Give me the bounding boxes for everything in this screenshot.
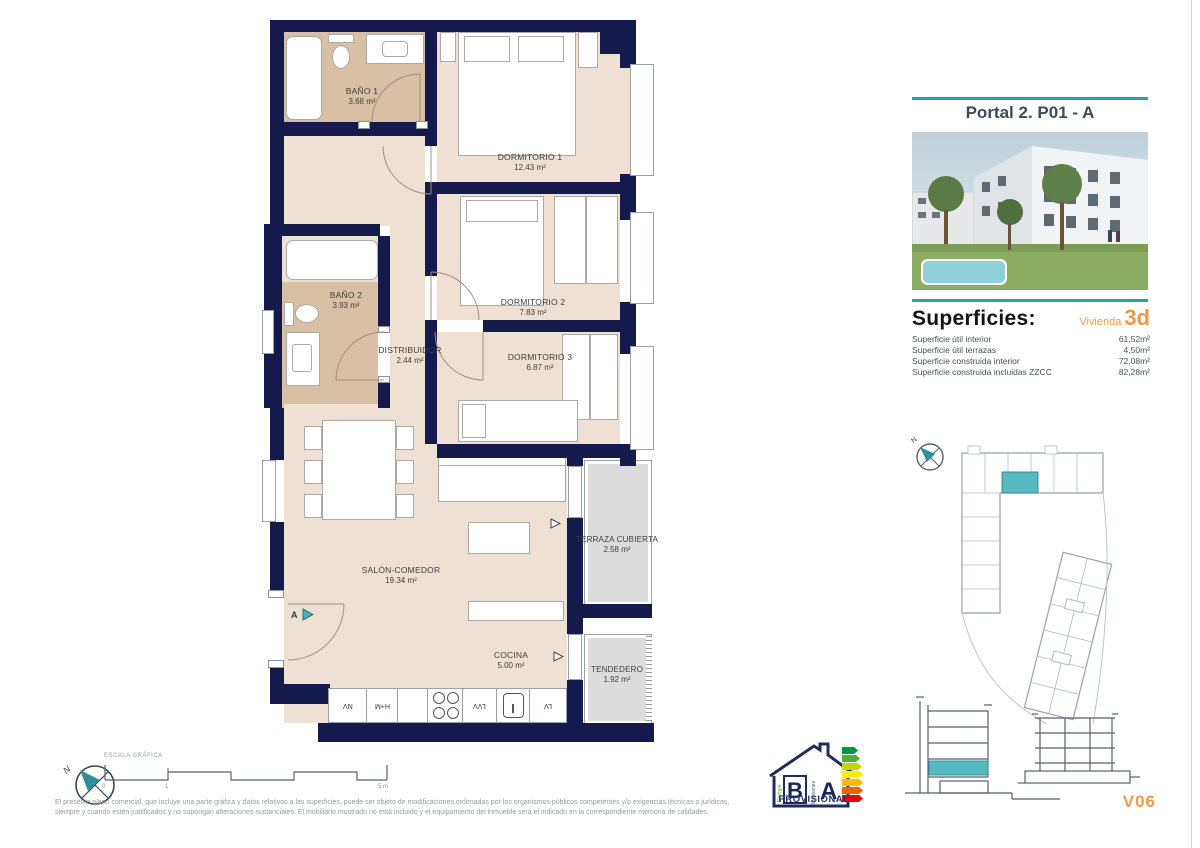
section-right	[1018, 714, 1140, 783]
portal-title: Portal 2. P01 - A	[912, 103, 1148, 123]
surface-row: Superficie construida interior72,08m²	[912, 356, 1150, 366]
room-label-banio2: BAÑO 23.93 m²	[286, 290, 406, 311]
teal-rule-superficies	[912, 299, 1148, 302]
kitchen-cell-dishwasher: LVV	[463, 688, 497, 723]
energy-provisional-label: PROVISIONAL	[764, 794, 864, 805]
kitchen-cell-washer: LV	[530, 688, 567, 723]
superficies-header: Superficies: Vivienda3d	[912, 305, 1150, 331]
kitchen-counter: NV H+M LVV LV	[328, 688, 567, 723]
kitchen-cell-sink	[497, 688, 530, 723]
surface-row: Superficie útil terrazas4,50m²	[912, 345, 1150, 355]
room-label-distribuidor: DISTRIBUIDOR2.44 m²	[350, 345, 470, 366]
teal-rule-top	[912, 97, 1148, 100]
page-edge-line	[1191, 0, 1192, 848]
kitchen-cell-counter	[398, 688, 428, 723]
kitchen-cell-cooktop	[428, 688, 463, 723]
room-label-banio1: BAÑO 13.68 m²	[302, 86, 422, 107]
door-arcs	[262, 14, 664, 742]
room-label-dormitorio1: DORMITORIO 112.43 m²	[470, 152, 590, 173]
keyplan-compass-icon: N	[910, 436, 943, 470]
svg-text:N: N	[910, 436, 918, 445]
room-label-tendedero: TENDEDERO1.92 m²	[562, 665, 672, 686]
scale-tick-0: 0	[102, 784, 105, 790]
scale-tick-5m: 5 m	[378, 784, 388, 790]
vent-triangle-1-icon	[550, 518, 561, 529]
room-label-terraza: TERRAZA CUBIERTA2.58 m²	[562, 535, 672, 556]
disclaimer-line-2: siempre y cuando estén justificados y no…	[55, 808, 760, 818]
keyplan-highlighted-unit	[1002, 472, 1038, 493]
scale-tick-1: 1	[165, 784, 168, 790]
section-triangle-icon	[301, 608, 314, 621]
site-keyplan: N	[905, 432, 1161, 732]
room-label-dormitorio3: DORMITORIO 36.87 m²	[480, 352, 600, 373]
superficies-title: Superficies:	[912, 307, 1036, 331]
room-label-dormitorio2: DORMITORIO 27.83 m²	[473, 297, 593, 318]
section-marker-a: A	[291, 608, 314, 621]
surface-row: Superficie construida incluidas ZZCC82,2…	[912, 367, 1150, 377]
scale-label: ESCALA GRÁFICA	[104, 753, 163, 759]
kitchen-cell-fridge: NV	[328, 688, 367, 723]
section-highlight-floor	[929, 761, 988, 775]
floor-plan: NV H+M LVV LV BAÑO 13.68 m² DORMITORIO 1…	[262, 14, 664, 742]
room-label-salon: SALÓN-COMEDOR19.34 m²	[341, 565, 461, 586]
svg-text:N: N	[61, 763, 73, 775]
cooktop-icon	[433, 692, 458, 719]
disclaimer-line-1: El presente plano comercial, que incluye…	[55, 798, 760, 808]
plan-sheet: NV H+M LVV LV BAÑO 13.68 m² DORMITORIO 1…	[0, 0, 1200, 848]
vent-triangle-2-icon	[553, 651, 564, 662]
kitchen-cell-oven: H+M	[367, 688, 398, 723]
sink-icon	[503, 693, 524, 718]
sheet-version: V06	[1096, 792, 1156, 812]
vivienda-tag: Vivienda3d	[1079, 305, 1150, 331]
scale-bar	[100, 762, 392, 784]
building-render-image	[912, 132, 1148, 290]
surface-row: Superficie útil interior61,52m²	[912, 334, 1150, 344]
